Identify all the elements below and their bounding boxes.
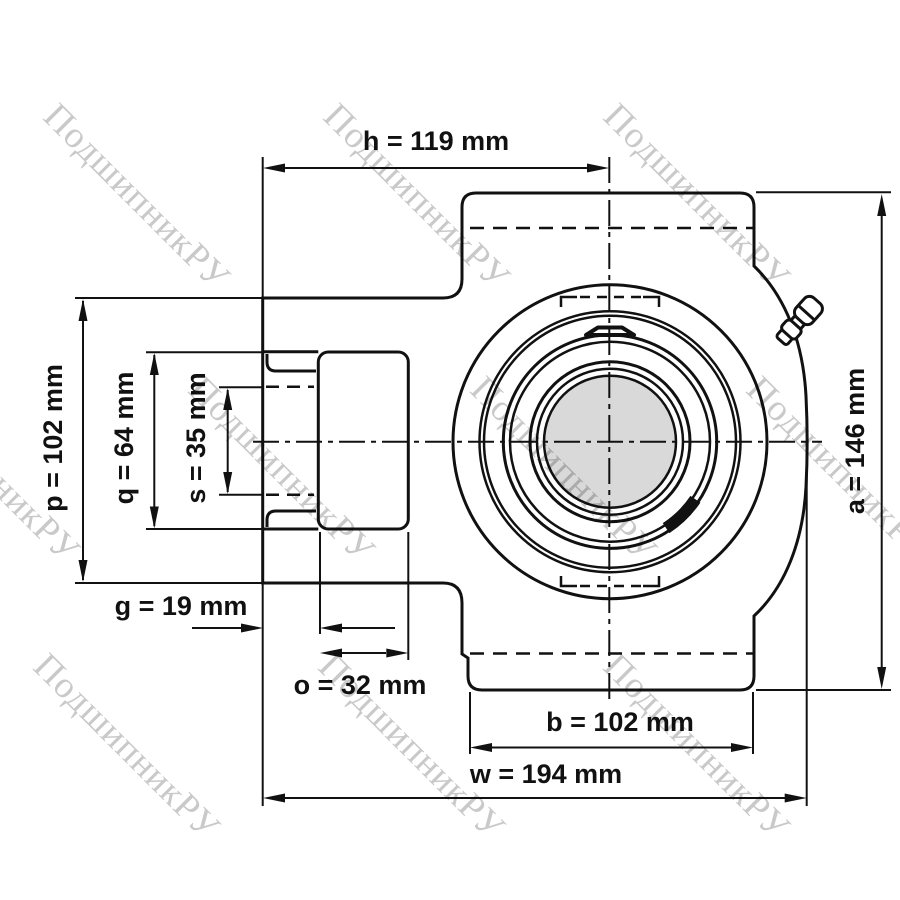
dim-label-w: w = 194 mm [469, 759, 622, 789]
dim-label-q: q = 64 mm [109, 372, 139, 505]
bearing-unit-drawing: h = 119 mm p = 102 mm q = 64 mm s = 35 m… [0, 0, 900, 900]
dim-label-a: a = 146 mm [840, 368, 870, 514]
dim-label-s: s = 35 mm [181, 372, 211, 503]
technical-drawing-page: h = 119 mm p = 102 mm q = 64 mm s = 35 m… [0, 0, 900, 900]
dim-label-o: o = 32 mm [294, 670, 427, 700]
locking-collar [318, 352, 408, 529]
dim-label-g: g = 19 mm [115, 591, 248, 621]
dim-label-b: b = 102 mm [546, 707, 694, 737]
dim-label-h: h = 119 mm [363, 126, 509, 156]
dim-label-p: p = 102 mm [38, 364, 68, 512]
